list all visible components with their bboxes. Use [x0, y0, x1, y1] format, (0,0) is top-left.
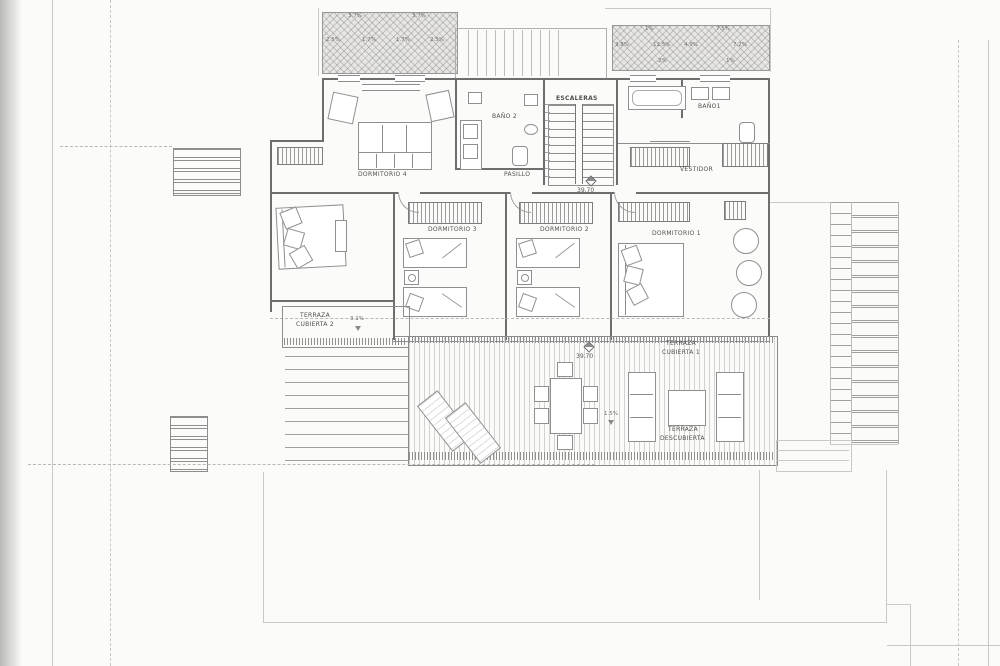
roof-slope-label: 2.5%	[326, 37, 340, 43]
room-label-pasillo: PASILLO	[504, 171, 530, 178]
ground-dashed-line	[28, 464, 595, 465]
garden-terrace-band	[830, 202, 852, 444]
window	[630, 75, 656, 82]
roof-slope-label: 1.7%	[396, 37, 410, 43]
exterior-wall-left	[270, 140, 272, 312]
window	[338, 75, 360, 82]
staircase-handrail-ticks	[545, 104, 550, 184]
roof-right-outline-top	[605, 8, 771, 9]
roof-hatch-right	[612, 25, 770, 71]
room-label-terraza-descubierta-line2: DESCUBIERTA	[660, 435, 705, 442]
bed-footboard	[335, 220, 347, 252]
roof-hatch-left	[322, 12, 458, 74]
garden-terrace-band	[852, 202, 899, 444]
scan-edge-shadow	[0, 0, 22, 666]
roof-slope-label: 1.7%	[362, 37, 376, 43]
exterior-stair	[173, 148, 241, 196]
toilet	[512, 146, 528, 166]
setback-dashed-line-left	[110, 0, 111, 666]
vestidor-counter-line	[650, 141, 690, 142]
room-label-bano2: BAÑO 2	[492, 113, 517, 120]
room-label-terraza-cubierta1-line2: CUBIERTA 1	[662, 349, 700, 356]
wardrobe	[408, 202, 482, 224]
sink	[463, 144, 478, 159]
slope-label-terraza: 1.5%	[604, 411, 618, 417]
fixture	[468, 92, 482, 104]
fixture	[524, 94, 538, 106]
sofa-cushion-divider	[718, 394, 741, 395]
floor-plan-scan: 3.7% 3.7% 2.5% 1.7% 1.7% 2.5% 1% 7.5% 3.…	[0, 0, 1000, 666]
sink	[463, 124, 478, 139]
room-label-bano1: BAÑO1	[698, 103, 721, 110]
room-label-dormitorio2: DORMITORIO 2	[540, 226, 589, 233]
wardrobe	[724, 201, 746, 220]
sheet-frame-line	[52, 0, 53, 666]
room-label-terraza-cubierta1-line1: TERRAZA	[666, 340, 696, 347]
round-chair	[736, 260, 762, 286]
sofa-seat-divider	[394, 154, 395, 168]
wardrobe	[519, 202, 593, 224]
dining-chair	[534, 386, 549, 402]
pergola-slats	[468, 30, 560, 76]
dining-chair	[583, 408, 598, 424]
wardrobe	[722, 143, 768, 167]
dining-chair	[534, 408, 549, 424]
wardrobe	[618, 202, 690, 222]
roof-slope-label: 3.7%	[348, 13, 362, 19]
path-dashed-line	[60, 146, 172, 147]
sofa-cushion-divider	[630, 417, 653, 418]
garden-step-landing	[776, 440, 852, 472]
plot-line	[263, 472, 264, 623]
room-label-terraza-cubierta2-line1: TERRAZA	[300, 312, 330, 319]
roof-slope-label: 1%	[645, 26, 654, 32]
nightstand	[517, 270, 532, 285]
dining-chair	[557, 362, 573, 377]
room-label-escaleras: ESCALERAS	[556, 95, 598, 102]
sink	[691, 87, 709, 100]
garden-link-line	[770, 202, 830, 203]
roof-slope-label: 3.7%	[412, 13, 426, 19]
deck-edge-band-bottom	[409, 452, 775, 460]
room-label-terraza-cubierta2-line2: CUBIERTA 2	[296, 321, 334, 328]
room-label-dormitorio3: DORMITORIO 3	[428, 226, 477, 233]
plot-line	[886, 470, 887, 623]
roof-slope-label: 4.9%	[684, 42, 698, 48]
roof-slope-label: 7.5%	[716, 26, 730, 32]
step-line	[777, 460, 849, 461]
outdoor-sofa	[716, 372, 744, 442]
sideboard	[362, 84, 420, 91]
interior-wall-bano2-left	[455, 80, 457, 168]
bathtub-inner	[632, 90, 682, 106]
room-label-vestidor: VESTIDOR	[680, 166, 713, 173]
exterior-wall-step	[270, 140, 324, 142]
bathtub	[628, 86, 686, 110]
dining-table	[550, 378, 582, 434]
coffee-table	[668, 390, 706, 426]
armchair	[327, 92, 358, 125]
level-value: 39.70	[577, 187, 594, 194]
outdoor-sofa	[628, 372, 656, 442]
plot-boundary-right	[988, 40, 989, 666]
toilet	[739, 122, 755, 143]
wardrobe	[630, 147, 690, 167]
roof-slope-label: 1%	[726, 58, 735, 64]
roof-slope-label: 12.5%	[653, 42, 670, 48]
window	[700, 75, 730, 82]
level-value: 39.70	[576, 353, 593, 360]
sofa-cushion-divider	[718, 417, 741, 418]
sofa-cushion-divider	[406, 125, 407, 155]
nightstand	[404, 270, 419, 285]
slope-label-terraza-cubierta2: 3.1%	[350, 316, 364, 322]
sofa-seat	[358, 152, 432, 170]
exterior-wall-left-wing-bottom	[270, 300, 395, 302]
round-chair	[731, 292, 757, 318]
plot-line	[910, 604, 911, 666]
roof-slope-label: 7.2%	[733, 42, 747, 48]
sink	[524, 124, 538, 135]
dresser	[277, 147, 323, 165]
dining-chair	[557, 435, 573, 450]
slope-arrow-icon	[355, 326, 361, 331]
step-line	[777, 450, 849, 451]
plot-line	[759, 470, 760, 600]
roof-slope-label: 3.8%	[615, 42, 629, 48]
deck-edge-band-top	[409, 337, 775, 343]
slope-arrow-icon	[608, 420, 614, 425]
roof-right-outline	[770, 8, 771, 72]
sofa-seat-divider	[412, 154, 413, 168]
sink	[712, 87, 730, 100]
armchair	[425, 90, 454, 122]
terraza-cubierta2-deck-edge	[284, 338, 406, 345]
sofa-cushion-divider	[630, 394, 653, 395]
round-chair	[733, 228, 759, 254]
lamp	[521, 274, 529, 282]
roof-slope-label: 2%	[658, 58, 667, 64]
room-label-dormitorio4: DORMITORIO 4	[358, 171, 407, 178]
room-label-terraza-descubierta-line1: TERRAZA	[668, 426, 698, 433]
interior-wall-stairs-right	[616, 80, 618, 185]
window	[395, 75, 425, 82]
room-label-dormitorio1: DORMITORIO 1	[652, 230, 701, 237]
garden-steps	[285, 356, 408, 466]
plot-line	[263, 622, 887, 623]
plot-line	[886, 604, 910, 605]
setback-dashed-line-right	[958, 40, 959, 666]
plot-line	[887, 645, 1000, 646]
sofa-seat-divider	[376, 154, 377, 168]
roof-slope-label: 2.5%	[430, 37, 444, 43]
sofa-cushion-divider	[382, 125, 383, 155]
staircase-stringer	[575, 104, 583, 184]
roof-left-outline	[318, 8, 319, 76]
exterior-wall-right	[768, 78, 770, 340]
lamp	[408, 274, 416, 282]
dining-chair	[583, 386, 598, 402]
exterior-wall-upper-left	[322, 78, 324, 142]
